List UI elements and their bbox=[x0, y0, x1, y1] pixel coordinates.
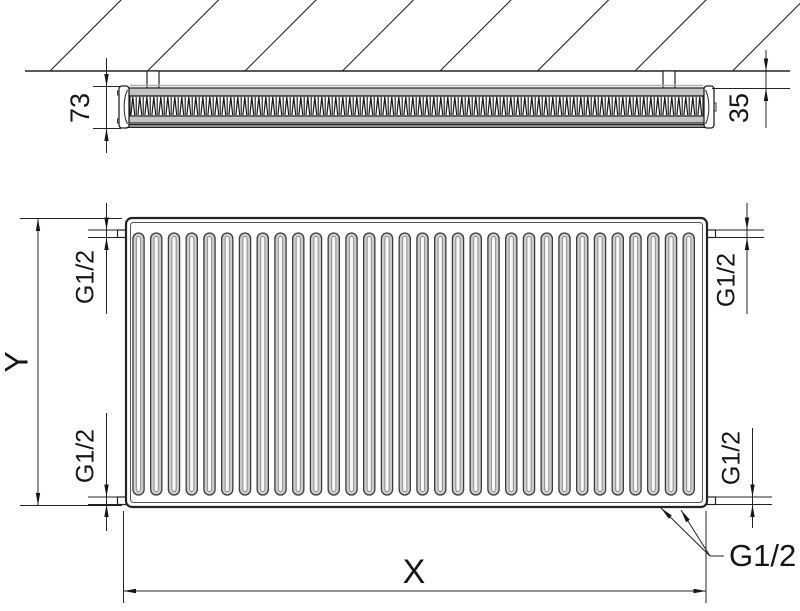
channel-inner bbox=[598, 237, 602, 492]
channel-inner bbox=[225, 237, 229, 492]
channel-inner bbox=[687, 237, 691, 492]
front-panel bbox=[128, 116, 705, 123]
arrow-left bbox=[124, 589, 137, 593]
arrow-up bbox=[36, 219, 40, 232]
connection-label: G1/2 bbox=[718, 431, 746, 485]
channel-inner bbox=[278, 237, 282, 492]
arrow-down bbox=[104, 74, 108, 87]
channel-inner bbox=[562, 237, 566, 492]
leader-arrow bbox=[681, 510, 690, 522]
dim-connection-top-right: G1/2 bbox=[713, 203, 764, 314]
channel-inner bbox=[491, 237, 495, 492]
dim-connection-bottom-left: G1/2 bbox=[72, 413, 119, 531]
channel-inner bbox=[633, 237, 637, 492]
radiator-section bbox=[118, 86, 717, 129]
channel-inner bbox=[616, 237, 620, 492]
channel-inner bbox=[385, 237, 389, 492]
arrow-up bbox=[764, 89, 768, 102]
connection-label: G1/2 bbox=[72, 429, 100, 483]
channel-inner bbox=[527, 237, 531, 492]
arrow-right bbox=[694, 589, 707, 593]
dim-connection-top-left: G1/2 bbox=[72, 203, 119, 314]
back-panel bbox=[128, 88, 705, 96]
arrow-down bbox=[36, 493, 40, 506]
connection-label: G1/2 bbox=[729, 538, 796, 573]
arrow-down bbox=[764, 59, 768, 72]
drawing-canvas: 73 35 Y bbox=[0, 0, 800, 611]
channel-inner bbox=[207, 237, 211, 492]
leader-connection-bottom: G1/2 bbox=[661, 508, 796, 573]
channel-inner bbox=[438, 237, 442, 492]
channel-inner bbox=[296, 237, 300, 492]
channel-inner bbox=[190, 237, 194, 492]
channel-inner bbox=[172, 237, 176, 492]
wall-hatching bbox=[50, 0, 800, 71]
channel-inner bbox=[545, 237, 549, 492]
leader-arrow bbox=[661, 508, 672, 519]
front-view: Y X G1/2 G1/2 bbox=[0, 203, 796, 603]
channel-inner bbox=[669, 237, 673, 492]
channel-inner bbox=[456, 237, 460, 492]
channel-inner bbox=[332, 237, 336, 492]
channel-inner bbox=[314, 237, 318, 492]
channel-inner bbox=[349, 237, 353, 492]
channel-inner bbox=[651, 237, 655, 492]
connection-label: G1/2 bbox=[72, 250, 100, 304]
channel-inner bbox=[509, 237, 513, 492]
front-face-line bbox=[127, 125, 706, 128]
dim-width-x: X bbox=[124, 511, 707, 603]
arrow-up bbox=[104, 129, 108, 142]
channel-inner bbox=[367, 237, 371, 492]
channel-inner bbox=[580, 237, 584, 492]
convector-fins bbox=[130, 96, 703, 116]
connection-label: G1/2 bbox=[713, 253, 741, 307]
dim-height-y: Y bbox=[0, 219, 122, 506]
channel-inner bbox=[261, 237, 265, 492]
depth-value: 73 bbox=[65, 93, 95, 123]
channel-inner bbox=[474, 237, 478, 492]
wall-gap-value: 35 bbox=[724, 93, 754, 123]
channel-inner bbox=[420, 237, 424, 492]
radiator-dimension-drawing: 73 35 Y bbox=[0, 0, 800, 611]
dim-depth: 73 bbox=[65, 58, 121, 153]
channel-inner bbox=[243, 237, 247, 492]
dim-connection-bottom-right: G1/2 bbox=[714, 428, 772, 528]
channel-inner bbox=[136, 237, 140, 492]
top-view: 73 35 bbox=[25, 0, 800, 153]
width-value: X bbox=[403, 553, 426, 591]
dim-wall-gap: 35 bbox=[712, 50, 790, 128]
channel-inner bbox=[154, 237, 158, 492]
channel-inner bbox=[403, 237, 407, 492]
height-value: Y bbox=[0, 351, 34, 372]
